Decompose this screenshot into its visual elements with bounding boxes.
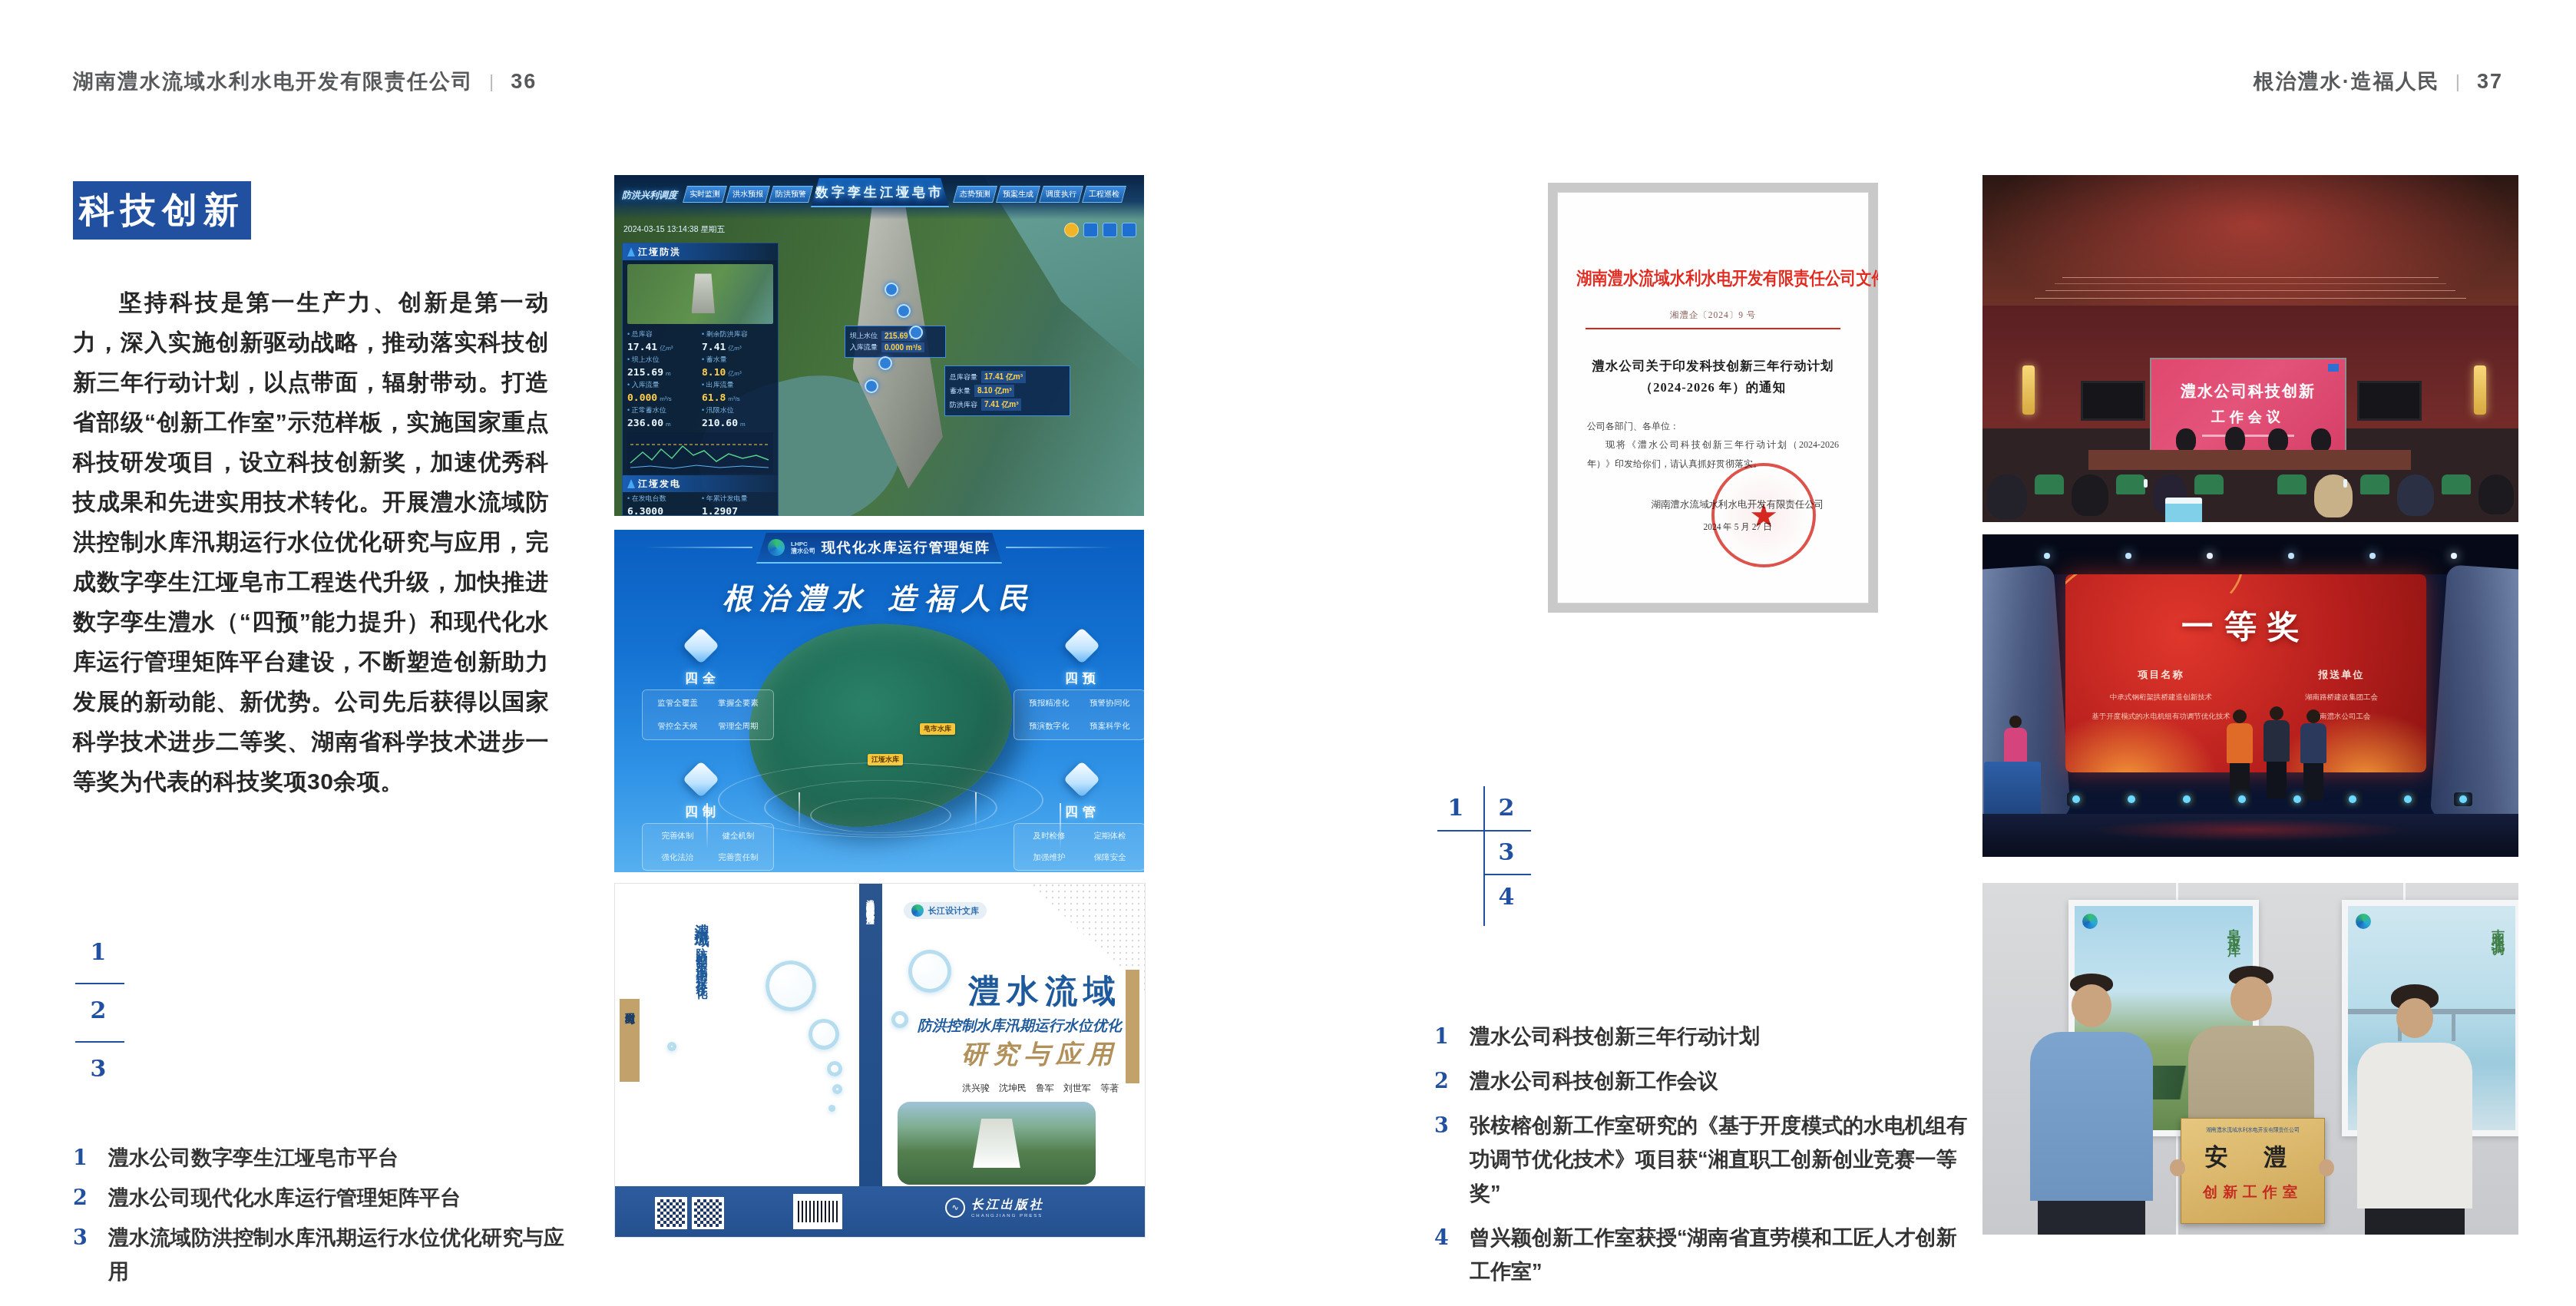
header-wing-line [645,547,752,548]
slogan-calligraphy: 根治澧水 造福人民 [614,579,1144,618]
cover-dam-photo [898,1102,1096,1185]
screen-title-line2: 工作会议 [2151,408,2345,426]
publisher-name: 长江出版社 [971,1197,1044,1213]
settings-icon [1122,223,1136,237]
lhpc-logo-icon [2356,914,2371,929]
water-drop [667,1042,676,1051]
green-chair [2116,474,2145,494]
awardee-navy [2300,709,2326,800]
dam-inset-photo [627,264,773,324]
document-salutation: 公司各部门、各单位： [1587,417,1839,436]
slogan: 根治澧水·造福人民 [2254,68,2440,95]
stage-light [2233,792,2251,806]
locate-icon [1103,223,1117,237]
publisher-name-en: CHANGJIANG PRESS [971,1213,1044,1218]
tab-group-right: 态势预测 预案生成 调度执行 工程巡检 [955,186,1124,203]
water-bottle [2144,479,2148,488]
company-name: 湖南澧水流域水利水电开发有限责任公司 [73,68,474,95]
map-marker [909,326,923,339]
gold-plaque: 湖南澧水流域水利水电开发有限责任公司 安 澧 创新工作室 [2181,1118,2325,1224]
section-title-badge: 科技创新 [73,181,251,240]
spotlight [2369,553,2376,559]
qr-code [655,1197,687,1229]
group-panel-siyu: 预报精准化预警协同化 预演数字化预案科学化 [1014,689,1144,740]
right-page-header: 根治澧水·造福人民 | 37 [2254,68,2503,95]
stage-light [2288,792,2306,806]
book-title2: 研究与应用 [922,1037,1119,1072]
map-marker [878,356,892,370]
page-number-left: 36 [511,70,537,94]
light-pillar [706,803,708,849]
stage-light [2454,792,2472,806]
stat: 坝上水位215.69m [627,355,699,379]
water-drop [809,1019,839,1050]
water-drop [832,1084,842,1094]
figure-index-2: 2 [1491,794,1522,821]
photo-official-document: 湖南澧水流域水利水电开发有限责任公司文件 湘澧企〔2024〕9 号 澧水公司关于… [1548,183,1878,613]
stat: 汛限水位210.60m [702,405,773,429]
timestamp: 2024-03-15 13:14:38 星期五 [623,224,725,235]
group-icon-siquan [683,627,719,664]
panel-title-flood: 江垭防洪 [623,243,778,260]
stage-light [2178,792,2196,806]
stage-light [2399,792,2417,806]
flood-stats-grid: 总库容17.41亿m³ 剩余防洪库容7.41亿m³ 坝上水位215.69m 蓄水… [623,328,778,431]
power-stats-grid: 在发电台数6.3000 年累计发电量1.2907 月累计发电量3359.21 当… [623,492,778,516]
audience-right [2273,470,2518,522]
hand [2170,1159,2185,1176]
caption-text: 澧水公司数字孪生江垭皂市平台 [108,1141,398,1175]
photo-innovation-meeting: 澧水公司科技创新 工作会议 [1982,175,2518,522]
caption-number: 2 [1434,1064,1457,1098]
rostrum-person [2268,428,2288,451]
stage-light-row [2067,792,2472,806]
photo-digital-twin-platform: 防洪兴利调度 实时监测 洪水预报 防洪预警 数字孪生江垭皂市 态势预测 预案生成… [614,175,1144,516]
caption-row: 1澧水公司科技创新三年行动计划 [1434,1020,1972,1053]
caption-number: 3 [73,1221,96,1288]
green-chair [2277,474,2306,494]
left-data-panel: 江垭防洪 总库容17.41亿m³ 剩余防洪库容7.41亿m³ 坝上水位215.6… [622,243,779,516]
publisher-block: ∿ 长江出版社 CHANGJIANG PRESS [945,1197,1044,1218]
group-panel-siguan: 及时检修定期体检 加强维护保障安全 [1014,823,1144,871]
photo-book-cover: 澧水流域 防洪控制水库汛期运行水位优化 研究与应用 澧水流域防洪控制水库汛期运行… [614,883,1146,1238]
photo-award-ceremony: 一等奖 项目名称 中承式钢桁架拱桥建造创新技术 基于开度模式的水电机组有功调节优… [1982,534,2518,857]
plaque-company-line: 湖南澧水流域水利水电开发有限责任公司 [2188,1126,2316,1134]
document-page: 湖南澧水流域水利水电开发有限责任公司文件 湘澧企〔2024〕9 号 澧水公司关于… [1557,192,1869,603]
figure-index-2: 2 [83,997,114,1023]
group-icon-siguan [1063,761,1100,798]
caption-number: 1 [1434,1020,1457,1053]
figure-index-vline [1483,786,1485,926]
stat: 剩余防洪库容7.41亿m³ [702,329,773,353]
audience-person [2478,474,2514,514]
caption-row: 2澧水公司科技创新工作会议 [1434,1064,1972,1098]
photo-innovation-studio-plaque: 皂市水库 南水北调 [1982,883,2518,1235]
spotlight [2207,553,2213,559]
person-right [2357,984,2472,1235]
tab-project-inspection: 工程巡检 [1082,186,1126,203]
red-rule [1586,328,1840,329]
poster-right-caption: 南水北调 [2490,918,2508,1049]
caption-row: 3澧水流域防洪控制水库汛期运行水位优化研究与应用 [73,1221,580,1288]
back-cover-title: 澧水流域 防洪控制水库汛期运行水位优化 [692,911,712,1142]
rostrum-person [2311,428,2331,451]
lhpc-logo-icon [768,539,785,556]
water-drop [828,1105,835,1112]
right-caption-list: 1澧水公司科技创新三年行动计划 2澧水公司科技创新工作会议 3张桉榕创新工作室研… [1434,1020,1972,1288]
reservoir-info-card: 总库容量17.41 亿m³ 蓄水量8.10 亿m³ 防洪库容7.41 亿m³ [944,365,1070,416]
platform-ring [810,798,951,833]
header-wing-line [1006,547,1113,548]
photo-matrix-platform: LHPC澧水公司 现代化水库运行管理矩阵 根治澧水 造福人民 皂市水库 江垭水库… [614,530,1144,872]
group-icon-sizhi [683,761,719,798]
figure-index-3: 3 [83,1055,114,1082]
toolbar-icons [1064,223,1136,237]
figure-index-hline [1483,874,1531,875]
gold-cityscape-glow [2065,711,2219,772]
tab-plan-generation: 预案生成 [996,186,1040,203]
series-badge: 长江设计文库 [904,902,987,919]
column-header-project: 项目名称 [2075,668,2248,682]
water-bottle [2343,479,2347,488]
award-unit-row: 湖南路桥建设集团工会 [2266,693,2417,703]
stage-side-panel-right [2430,564,2518,825]
stat: 年累计发电量1.2907 [702,494,773,516]
group-name-siguan: 四管 [1037,803,1129,821]
tab-flood-warning: 防洪预警 [769,186,813,203]
green-chair [2360,474,2389,494]
matrix-title: 现代化水库运行管理矩阵 [822,538,990,557]
caption-number: 3 [1434,1109,1457,1210]
group-name-siquan: 四全 [656,670,749,687]
publisher-logo-icon: ∿ [945,1198,965,1218]
spotlight [2451,553,2457,559]
stat: 出库流量61.8m³/s [702,380,773,404]
lhpc-logo-icon [2082,914,2098,929]
figure-index-hline [1437,830,1531,832]
screen-logo-icon [2328,364,2339,372]
light-pillar [799,792,800,829]
stage-light [2343,792,2362,806]
wall-lamp [2022,365,2035,415]
presenter-suit [2264,706,2290,798]
plaque-name: 安 澧 [2181,1142,2324,1173]
figure-index-line [75,1041,124,1043]
tissue-box [2165,498,2202,522]
green-chair [2035,474,2064,494]
group-panel-sizhi: 完善体制健全机制 强化法治完善责任制 [642,823,774,871]
document-number: 湘澧企〔2024〕9 号 [1558,309,1868,321]
breadcrumb: 防洪兴利调度 [622,189,677,202]
panel-title-power: 江垭发电 [623,475,778,492]
header-divider: | [2455,71,2462,92]
stat: 蓄水量8.10亿m³ [702,355,773,379]
logo-text: LHPC澧水公司 [791,541,815,554]
caption-row: 1澧水公司数字孪生江垭皂市平台 [73,1141,580,1175]
screen-title-line1: 澧水公司科技创新 [2151,381,2345,402]
page-number-right: 37 [2477,70,2503,94]
matrix-header: LHPC澧水公司 现代化水库运行管理矩阵 [756,533,1002,564]
isbn-barcode [793,1194,842,1229]
caption-text: 曾兴颖创新工作室获授“湖南省直劳模和工匠人才创新工作室” [1470,1221,1972,1288]
stat: 入库流量0.000m³/s [627,380,699,404]
tab-flood-forecast: 洪水预报 [726,186,770,203]
map-marker [897,304,911,318]
qr-code [692,1197,724,1229]
figure-index-1: 1 [83,938,114,965]
water-level-chart [627,432,773,474]
rostrum-table [2088,450,2411,470]
floor-red-reflection [2090,818,2412,841]
spotlight [2125,553,2131,559]
front-tan-bar [1126,970,1139,1083]
audience-area [1982,470,2518,522]
press-logo-icon [911,904,924,917]
water-drop [827,1061,842,1076]
figure-index-1: 1 [1440,794,1471,821]
spotlight [2044,553,2050,559]
group-icon-siyu [1063,627,1100,664]
left-caption-list: 1澧水公司数字孪生江垭皂市平台 2澧水公司现代化水库运行管理矩阵平台 3澧水流域… [73,1141,580,1288]
hand [2319,1159,2334,1176]
side-tv-screen [2081,381,2145,421]
reflective-floor [1982,814,2518,857]
gold-cityscape-glow [2273,711,2426,772]
caption-text: 张桉榕创新工作室研究的《基于开度模式的水电机组有功调节优化技术》项目获“湘直职工… [1470,1109,1972,1210]
caption-row: 3张桉榕创新工作室研究的《基于开度模式的水电机组有功调节优化技术》项目获“湘直职… [1434,1109,1972,1210]
green-chair [2442,474,2471,494]
tab-situation-forecast: 态势预测 [953,186,997,203]
side-tv-screen [2357,381,2422,421]
platform-title: 数字孪生江垭皂市 [811,178,949,207]
left-page-header: 湖南澧水流域水利水电开发有限责任公司 | 36 [73,68,537,95]
caption-text: 澧水公司现代化水库运行管理矩阵平台 [108,1181,461,1215]
map-tooltip: 坝上水位215.69 m 入库流量0.000 m³/s [845,326,946,358]
series-name: 长江设计文库 [928,905,979,917]
stat: 在发电台数6.3000 [627,494,699,516]
light-pillar [975,792,977,829]
caption-text: 澧水公司科技创新三年行动计划 [1470,1020,1760,1053]
book-title: 澧水流域 [922,970,1122,1013]
stat: 总库容17.41亿m³ [627,329,699,353]
rostrum-person [2176,428,2196,451]
caption-row: 4曾兴颖创新工作室获授“湖南省直劳模和工匠人才创新工作室” [1434,1221,1972,1288]
group-panel-siquan: 监管全覆盖掌握全要素 管控全天候管理全周期 [642,689,774,740]
awardee-orange [2227,709,2253,800]
stat: 正常蓄水位236.00m [627,405,699,429]
header-divider: | [489,71,495,92]
award-project-row: 中承式钢桁架拱桥建造创新技术 [2075,693,2248,703]
caption-row: 2澧水公司现代化水库运行管理矩阵平台 [73,1181,580,1215]
audience-person [2072,474,2108,516]
rostrum-person [2225,427,2245,451]
map-marker [885,283,898,296]
book-subtitle: 防洪控制水库汛期运行水位优化 [891,1016,1122,1036]
caption-number: 4 [1434,1221,1457,1288]
tab-realtime-monitoring: 实时监测 [683,186,727,203]
audience-person [1987,474,2027,519]
back-title2: 研究与应用 [623,1005,637,1082]
spine-title: 澧水流域防洪控制水库汛期运行水位优化研究与应用 [865,893,876,1123]
stage-light [2067,792,2085,806]
figure-index-4: 4 [1491,883,1522,910]
light-pillar [1060,803,1061,849]
caption-text: 澧水公司科技创新工作会议 [1470,1064,1718,1098]
group-name-siyu: 四预 [1037,670,1129,687]
map-label-zaoshi: 皂市水库 [920,723,955,735]
magazine-spread: 湖南澧水流域水利水电开发有限责任公司 | 36 根治澧水·造福人民 | 37 科… [0,0,2576,1306]
body-paragraph: 坚持科技是第一生产力、创新是第一动力，深入实施创新驱动战略，推动落实科技创新三年… [73,283,549,802]
audience-person [2397,474,2434,516]
green-chair [2194,474,2224,494]
document-title: 澧水公司关于印发科技创新三年行动计划 （2024-2026 年）的通知 [1573,355,1853,398]
figure-index-3: 3 [1491,838,1522,865]
spotlight [2288,553,2294,559]
person-left [2030,974,2153,1235]
cover-bottom-band: ∿ 长江出版社 CHANGJIANG PRESS [615,1186,1145,1237]
caption-number: 1 [73,1141,96,1175]
figure-index-line [75,983,124,984]
book-authors: 洪兴骏 沈坤民 鲁军 刘世军 等著 [907,1082,1119,1095]
map-marker [865,379,878,393]
tab-group-left: 实时监测 洪水预报 防洪预警 [685,186,811,203]
document-body: 现将《澧水公司科技创新三年行动计划（2024-2026 年）》印发给你们，请认真… [1587,435,1839,474]
plaque-subtitle: 创新工作室 [2181,1182,2324,1202]
stage-light [2122,792,2141,806]
wall-lamp [2474,365,2486,415]
column-header-unit: 报送单位 [2266,668,2417,682]
book-spine: 澧水流域防洪控制水库汛期运行水位优化研究与应用 [859,884,882,1237]
user-icon [1064,223,1079,237]
caption-number: 2 [73,1181,96,1215]
caption-text: 澧水流域防洪控制水库汛期运行水位优化研究与应用 [108,1221,580,1288]
document-red-header: 湖南澧水流域水利水电开发有限责任公司文件 [1576,266,1850,290]
layers-icon [1083,223,1098,237]
water-drop [766,960,816,1011]
official-red-seal: ★ [1711,463,1816,567]
stage-spotlights [2044,553,2457,559]
tab-dispatch-execution: 调度执行 [1039,186,1083,203]
